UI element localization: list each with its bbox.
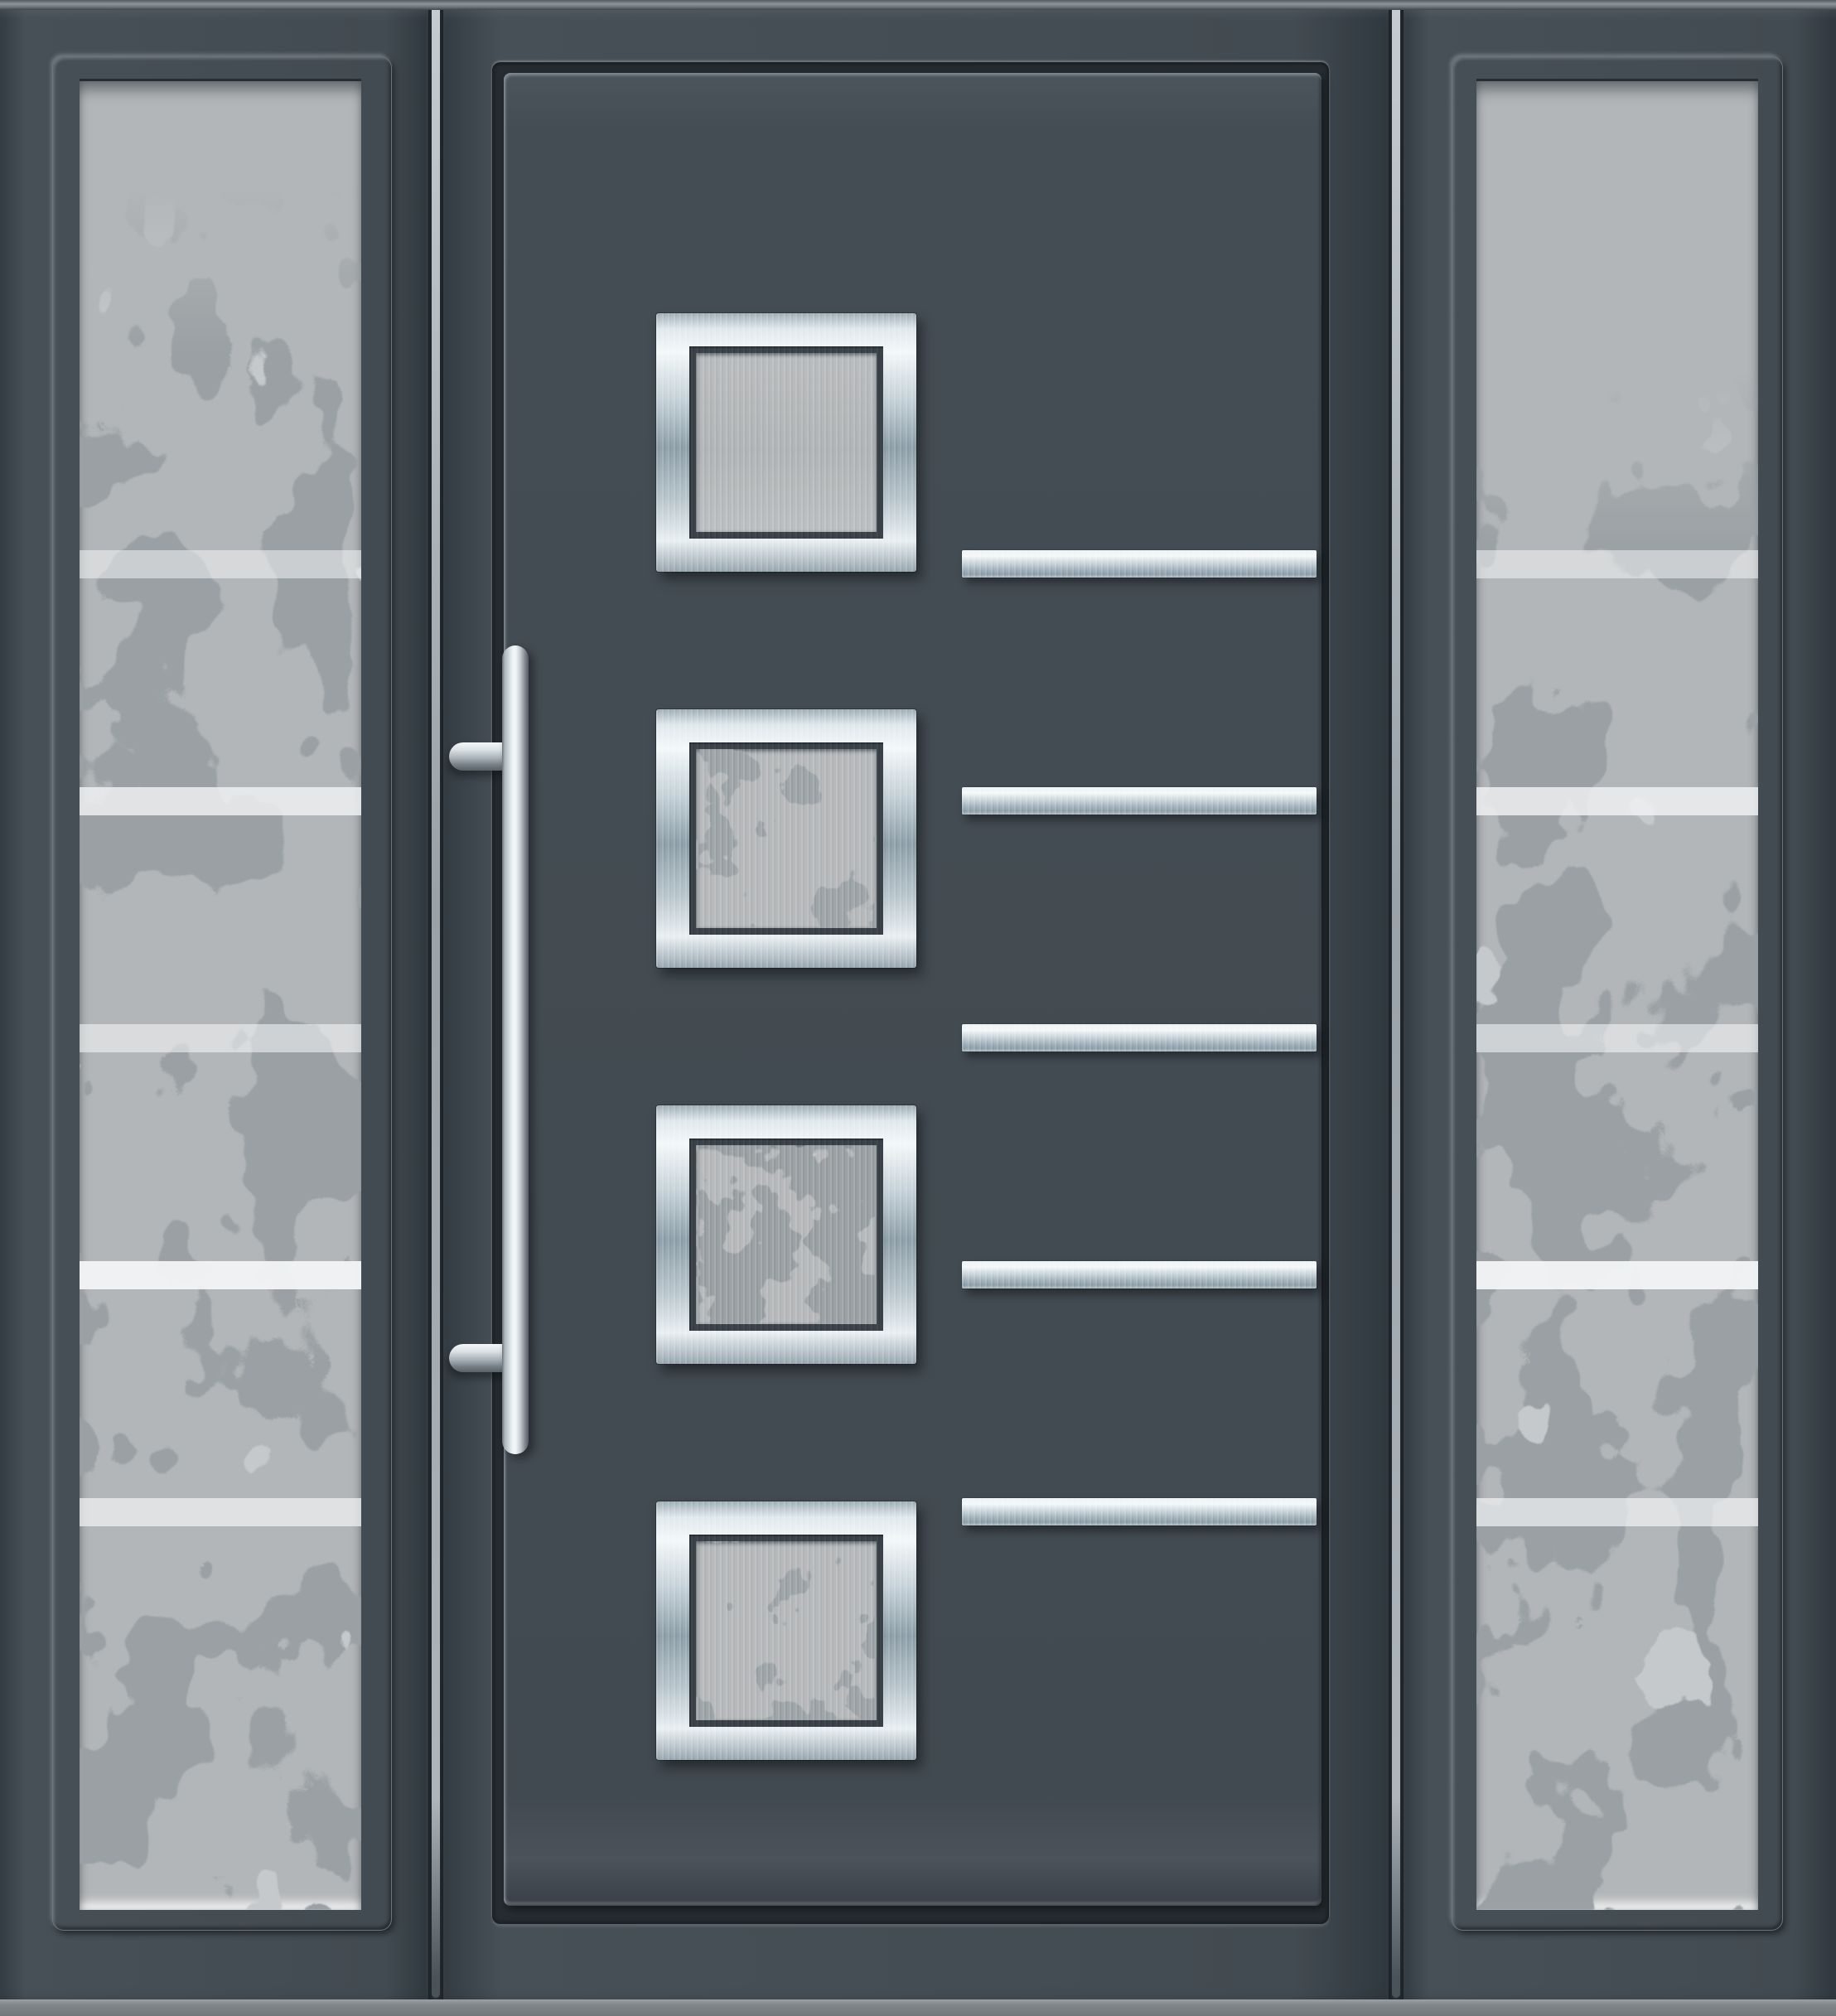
door-window-square-4	[656, 1501, 916, 1760]
tree-silhouette-texture	[696, 749, 877, 928]
window-glass	[696, 1541, 877, 1720]
window-bezel	[689, 1139, 883, 1331]
tree-silhouette-texture	[696, 1145, 877, 1324]
frame-top-highlight	[0, 0, 1836, 10]
glass-stripe	[1476, 1024, 1758, 1052]
left-sidelight-glass	[80, 79, 361, 1910]
window-bezel	[689, 1535, 883, 1727]
steel-strip-2	[962, 787, 1317, 815]
mullion-highlight-line	[1392, 3, 1400, 1998]
glass-stripe	[1476, 1498, 1758, 1526]
glass-stripe	[1476, 1261, 1758, 1289]
frame-mullion-left	[428, 0, 443, 2016]
threshold-sill	[0, 1999, 1836, 2016]
glass-stripe	[1476, 550, 1758, 578]
glass-stripe	[80, 1261, 361, 1289]
door-window-square-3	[656, 1105, 916, 1364]
door-pull-handle-bar	[502, 645, 529, 1454]
window-bezel	[689, 346, 883, 539]
glass-stripe	[80, 1024, 361, 1052]
door-window-square-2	[656, 709, 916, 968]
right-sidelight-glass	[1476, 79, 1758, 1910]
window-glass	[696, 1145, 877, 1324]
door-window-square-1	[656, 313, 916, 572]
window-glass	[696, 749, 877, 928]
mullion-highlight-line	[432, 3, 440, 1998]
glass-stripe	[80, 1498, 361, 1526]
handle-standoff-bottom	[449, 1344, 509, 1372]
tree-silhouette-texture	[696, 1541, 877, 1720]
entry-door-render	[0, 0, 1836, 2016]
steel-strip-1	[962, 550, 1317, 578]
window-bezel	[689, 742, 883, 935]
steel-strip-4	[962, 1261, 1317, 1288]
glass-stripe	[80, 550, 361, 578]
tree-silhouette-texture	[80, 79, 361, 1910]
glass-stripe	[80, 787, 361, 815]
window-glass	[696, 353, 877, 532]
frame-mullion-right	[1389, 0, 1404, 2016]
glass-stripe	[1476, 787, 1758, 815]
handle-standoff-top	[449, 742, 509, 771]
tree-silhouette-texture	[1476, 79, 1758, 1910]
steel-strip-5	[962, 1498, 1317, 1525]
steel-strip-3	[962, 1024, 1317, 1052]
